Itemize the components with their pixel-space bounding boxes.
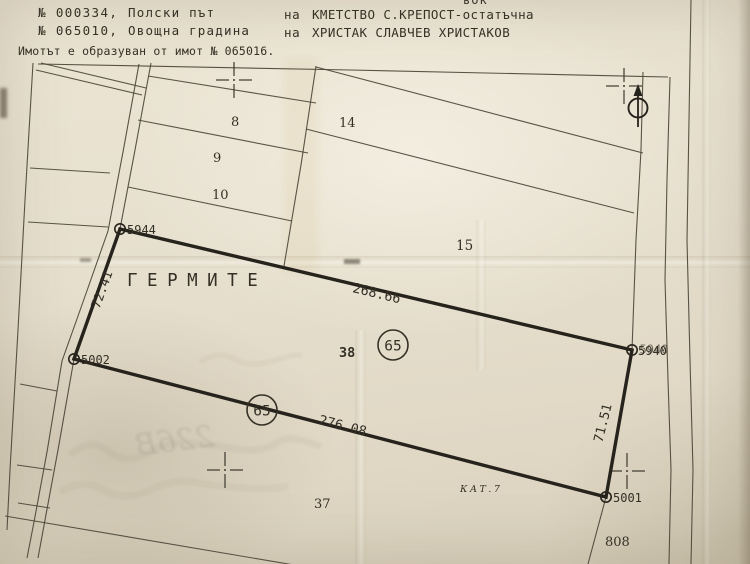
survey-grid-crosses — [207, 62, 645, 489]
side-length-east: 71.51 — [592, 402, 616, 444]
side-length-south: 276.08 — [317, 412, 368, 440]
parcel-65: 5944 5002 5940 5940 5001 268.66 276.08 7… — [69, 223, 669, 505]
category-label: КАТ.7 — [459, 484, 502, 495]
parcel-15-label: 15 — [456, 238, 473, 254]
parcel1-prep: на — [284, 7, 300, 22]
massif-east-line-lower — [588, 497, 606, 564]
header-cutoff-fragment: вок — [463, 0, 488, 7]
ink-bleedthrough: 226В — [60, 355, 321, 496]
point-label-overprint: 5940 — [640, 343, 669, 357]
parcel-number-labels: 8 9 10 14 15 37 808 — [212, 115, 630, 550]
header-block: вок № 000334, Полски път на КМЕТСТВО С.К… — [18, 0, 534, 58]
parcel-10-label: 10 — [212, 188, 229, 203]
parcel14-15-line — [306, 129, 634, 213]
map-frame-top — [38, 64, 668, 77]
west-strip-line — [18, 503, 50, 508]
block-number: 38 — [339, 345, 355, 361]
side-length-west: 72.41 — [89, 269, 116, 311]
north-arrow-icon — [629, 84, 648, 127]
road-topleft-edge — [41, 63, 146, 88]
road-right-west-edge — [665, 77, 671, 564]
parcel1-owner: КМЕТСТВО С.КРЕПОСТ-остатъчна — [312, 7, 534, 22]
bleedthrough-squiggle — [60, 481, 288, 496]
parcel8-north-line — [148, 76, 316, 103]
road-topleft-edge — [36, 70, 142, 95]
bleedthrough-text: 226В — [133, 419, 217, 464]
block-divider-line — [284, 66, 316, 266]
locality-name: ГЕРМИТЕ — [127, 271, 267, 291]
parcel-808-label: 808 — [605, 535, 630, 550]
bleedthrough-squiggle — [200, 355, 302, 364]
parcel2-land-use: Овощна градина — [128, 23, 250, 38]
parcel-9-label: 9 — [213, 151, 221, 166]
road-right-east-edge — [687, 0, 693, 564]
west-strip-line — [20, 384, 57, 391]
point-label: 5001 — [613, 491, 642, 505]
cadastral-map-photo: 226В вок № 000334, Полски път на КМЕТСТВ… — [0, 0, 750, 564]
parcel1-land-use: Полски път — [128, 5, 215, 20]
map-drawing: 226В вок № 000334, Полски път на КМЕТСТВ… — [0, 0, 750, 564]
parcel-8-label: 8 — [231, 115, 239, 130]
parcel2-prep: на — [284, 25, 300, 40]
parcel8-9-line — [138, 120, 308, 153]
south-boundary-line — [5, 516, 300, 564]
parcel2-number: № 065010, — [38, 23, 118, 38]
parcel-37-label: 37 — [314, 497, 331, 512]
side-length-north: 268.66 — [351, 280, 402, 307]
parcel-65-number: 65 — [384, 339, 401, 355]
map-frame-left — [7, 63, 33, 530]
origin-note: Имотът е образуван от имот № 065016. — [18, 44, 274, 58]
point-label: 5944 — [127, 223, 156, 237]
west-strip-line — [17, 465, 52, 470]
point-label: 5002 — [81, 353, 110, 367]
west-strip-line — [30, 168, 110, 173]
parcel2-owner: ХРИСТАК СЛАВЧЕВ ХРИСТАКОВ — [312, 25, 510, 40]
parcel9-10-line — [128, 187, 292, 221]
parcel-14-label: 14 — [339, 116, 356, 131]
survey-point-5940: 5940 5940 — [627, 343, 669, 359]
parcel-65-number-badge: 65 — [378, 330, 408, 360]
parcel14-north-line — [316, 67, 643, 153]
parcel1-number: № 000334, — [38, 5, 118, 20]
west-strip-line — [28, 222, 108, 227]
parcel-65-number: 65 — [253, 404, 270, 420]
